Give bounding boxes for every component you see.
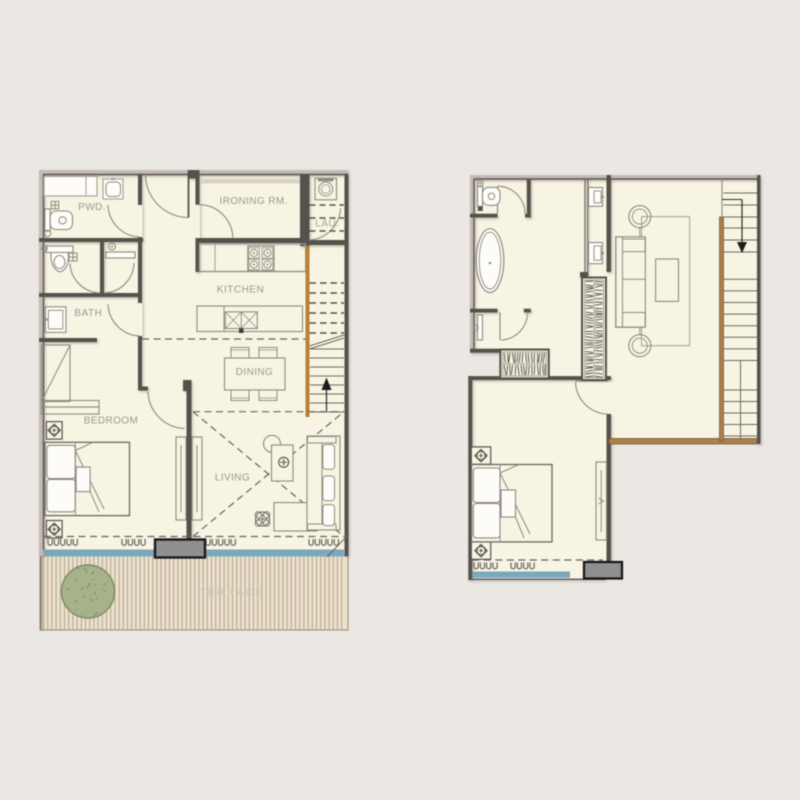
- svg-text:BATH: BATH: [74, 308, 102, 319]
- svg-text:PWD.: PWD.: [78, 202, 106, 213]
- svg-text:DINING: DINING: [236, 367, 273, 378]
- svg-text:IRONING RM.: IRONING RM.: [220, 196, 288, 207]
- svg-text:LIVING: LIVING: [215, 473, 250, 484]
- svg-text:KITCHEN: KITCHEN: [217, 285, 264, 296]
- svg-text:LAU.: LAU.: [315, 219, 339, 230]
- svg-text:TERRACE: TERRACE: [199, 587, 265, 599]
- svg-text:BEDROOM: BEDROOM: [84, 416, 138, 427]
